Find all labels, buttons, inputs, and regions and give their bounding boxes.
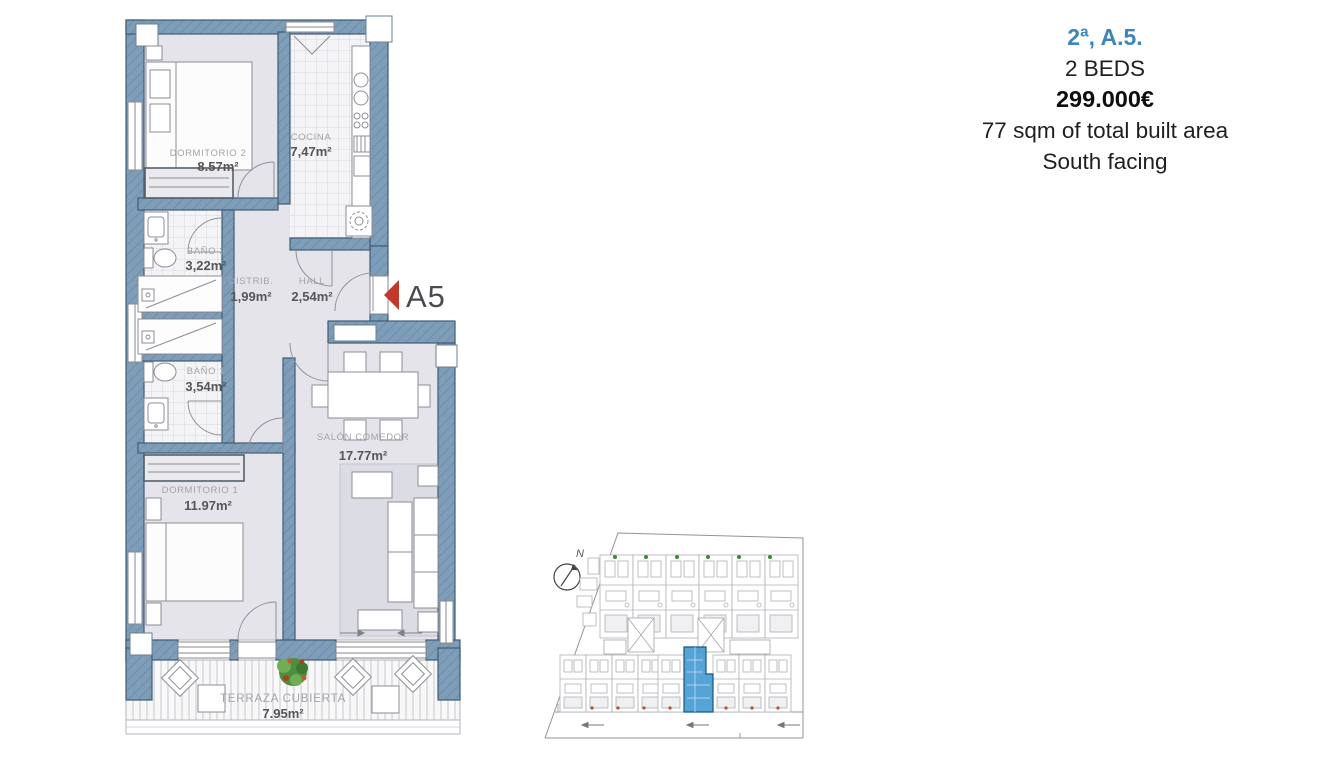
room-name-bath1: BAÑO 1: [187, 366, 225, 377]
toilet-bath1: [144, 362, 176, 382]
oven-icon: [354, 136, 370, 152]
sink-bath1: [144, 398, 168, 430]
washer-icon: [346, 206, 372, 236]
pillar: [436, 345, 457, 367]
wall: [276, 640, 336, 660]
appliance-icon: [354, 156, 370, 176]
room-name-bath2: BAÑO 2: [187, 246, 225, 257]
brochure-page: A5 DORMITORIO 2 8.57m² COCINA 7,47m² BAÑ…: [0, 0, 1340, 777]
compass-n-label: N: [576, 548, 584, 560]
room-name-salon: SALÓN COMEDOR: [317, 432, 409, 443]
room-area-salon: 17.77m²: [339, 448, 388, 463]
room-name-terraza: TERRAZA CUBIERTA: [220, 693, 346, 705]
compass: N: [554, 548, 584, 590]
room-name-distrib: DISTRIB.: [229, 276, 274, 287]
wall: [230, 640, 238, 660]
beds-line: 2 BEDS: [930, 53, 1280, 84]
wall: [138, 312, 222, 319]
room-area-hall: 2,54m²: [291, 289, 333, 304]
nightstand: [146, 498, 161, 520]
entry-step: [334, 325, 376, 341]
sink-bath2: [144, 212, 168, 244]
tv-bench: [358, 610, 402, 630]
room-area-dorm2: 8.57m²: [197, 159, 239, 174]
entrance-marker: A5: [384, 279, 446, 314]
terrace-pier-right: [438, 648, 460, 700]
terrace-pier-left: [126, 648, 152, 700]
bed-dorm1: [146, 523, 243, 601]
room-area-cocina: 7,47m²: [290, 144, 332, 159]
room-name-cocina: COCINA: [291, 132, 332, 143]
room-area-bath2: 3,22m²: [185, 258, 227, 273]
wall-kitchen-hall: [290, 238, 370, 250]
toilet-bath2: [144, 248, 176, 268]
wall: [138, 443, 295, 453]
window: [128, 552, 142, 624]
unit-reference: 2ª, A.5.: [930, 22, 1280, 53]
window: [128, 102, 142, 170]
room-area-bath1: 3,54m²: [185, 379, 227, 394]
wall-bath-corridor: [222, 210, 234, 443]
wardrobe-dorm1: [144, 455, 244, 481]
room-area-dorm1: 11.97m²: [184, 498, 232, 513]
highlighted-unit: [684, 647, 713, 712]
info-panel: 2ª, A.5. 2 BEDS 299.000€ 77 sqm of total…: [930, 22, 1280, 177]
sink-icon: [354, 73, 368, 87]
room-area-distrib: 1,99m²: [230, 289, 272, 304]
pillar: [366, 16, 392, 42]
buildings-bottom-row: [560, 655, 791, 712]
road-arrows: [582, 723, 800, 739]
shower-1: [138, 276, 222, 312]
nightstand: [146, 603, 161, 625]
terrace-seat: [372, 686, 399, 713]
built-area-line: 77 sqm of total built area: [930, 115, 1280, 146]
orientation-line: South facing: [930, 146, 1280, 177]
shower-2: [138, 319, 222, 354]
side-structures: [577, 558, 599, 626]
wall-dorm2-kitchen: [278, 32, 290, 204]
room-name-dorm1: DORMITORIO 1: [162, 485, 239, 496]
room-area-terraza: 7.95m²: [262, 706, 304, 721]
nightstand: [146, 46, 162, 60]
site-plan: N: [540, 520, 845, 770]
wall: [138, 198, 278, 210]
sliding-door-dorm1: [178, 642, 230, 658]
wall: [138, 354, 222, 361]
floor-plan: A5 DORMITORIO 2 8.57m² COCINA 7,47m² BAÑ…: [118, 6, 473, 768]
price-line: 299.000€: [930, 84, 1280, 115]
unit-label: A5: [406, 279, 446, 314]
wall-dorm1-living: [283, 358, 295, 640]
window: [286, 22, 334, 32]
door-opening: [238, 642, 276, 658]
buildings-top-row: [577, 555, 798, 638]
pillar: [136, 24, 158, 46]
pillar: [130, 633, 152, 655]
room-name-hall: HALL: [299, 276, 325, 287]
window: [440, 601, 453, 643]
room-name-dorm2: DORMITORIO 2: [170, 148, 247, 159]
wall: [370, 32, 388, 246]
hob-icon: [354, 113, 360, 119]
